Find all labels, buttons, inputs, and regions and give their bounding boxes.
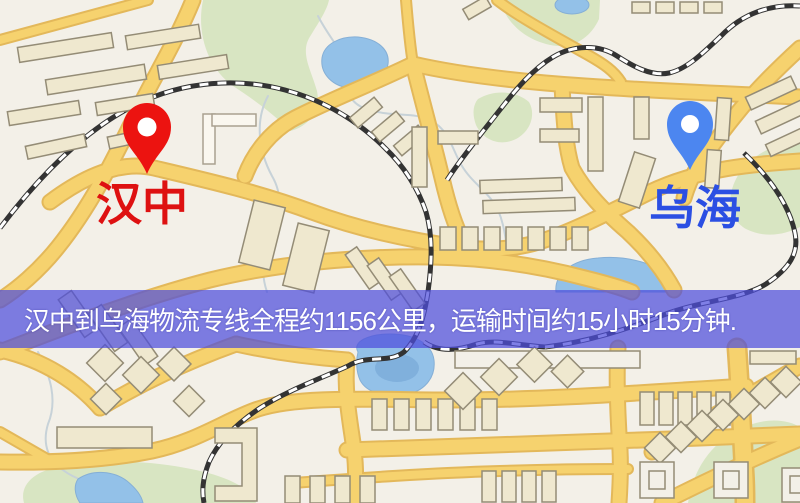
map-canvas: 汉中 乌海 — [0, 0, 800, 503]
route-info-text: 汉中到乌海物流专线全程约1156公里，运输时间约15小时15分钟. — [24, 301, 736, 338]
destination-city-label: 乌海 — [649, 182, 741, 234]
map-viewport[interactable]: 汉中 乌海 汉中到乌海物流专线全程约1156公里，运输时间约15小时15分钟. — [0, 0, 800, 503]
building-c-block — [215, 428, 257, 501]
origin-city-label: 汉中 — [96, 178, 188, 230]
route-info-banner: 汉中到乌海物流专线全程约1156公里，运输时间约15小时15分钟. — [0, 290, 800, 348]
